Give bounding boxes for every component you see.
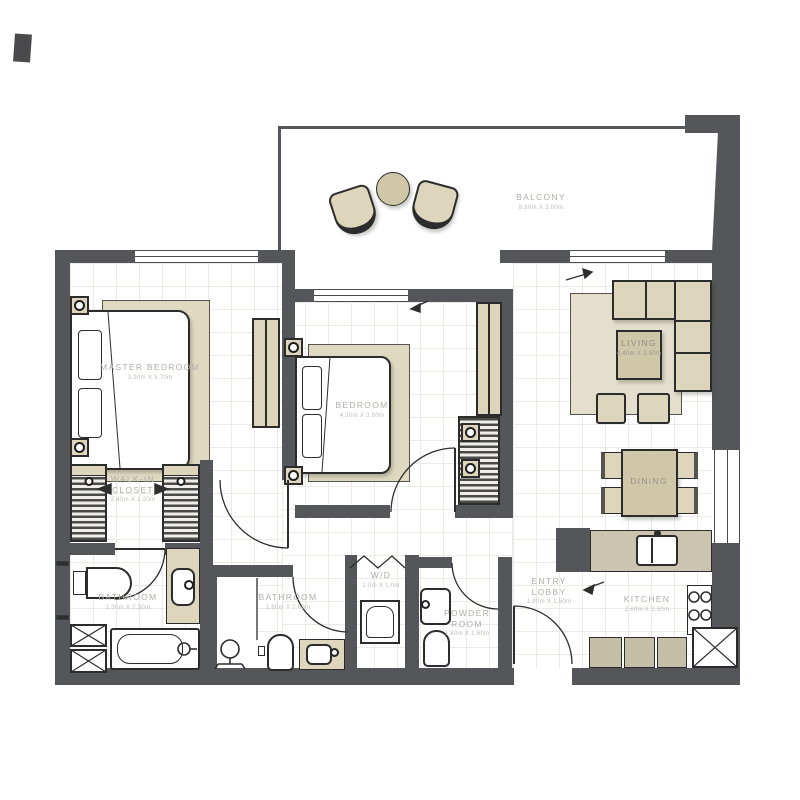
master-bedroom-dims: 3.90m X 3.70m: [95, 375, 205, 383]
bathtub-inner: [117, 634, 183, 664]
living-name: LIVING: [609, 338, 669, 349]
bathroom-master-dims: 2.30m X 2.30m: [88, 605, 168, 613]
shaft-box: [70, 649, 107, 673]
light-fixture-icon: [70, 296, 89, 315]
balcony-railing-left: [278, 126, 281, 252]
window-master-bedroom: [135, 250, 258, 263]
wall-kitchen-column: [556, 528, 590, 572]
walkin-closet-unit-right: [162, 464, 200, 542]
balcony-railing-top: [278, 126, 688, 129]
closet-cap: [164, 466, 198, 476]
sofa-cushion-line: [676, 320, 710, 322]
wall-bath-master-top-a: [55, 543, 115, 555]
label-balcony: BALCONY 8.60m X 3.00m: [491, 192, 591, 212]
light-fixture-ring: [74, 300, 85, 311]
dining-chair: [601, 487, 622, 514]
bedroom-name: BEDROOM: [312, 400, 412, 411]
window-dining: [714, 450, 740, 543]
balcony-name: BALCONY: [491, 192, 591, 203]
balcony-dims: 8.60m X 3.00m: [491, 205, 591, 213]
light-fixture-icon: [461, 459, 480, 478]
faucet-master: [184, 580, 194, 590]
light-fixture-icon: [284, 338, 303, 357]
label-walkin-closet: WALK-IN CLOSET 2.40m X 1.20m: [103, 474, 163, 505]
sofa-cushion-line: [676, 352, 710, 354]
bedroom-wardrobe-line: [488, 304, 490, 414]
pouf: [596, 393, 626, 424]
wall-outer-right-upper: [712, 250, 740, 450]
kitchen-cabinet: [589, 637, 622, 668]
wall-balcony-top-right: [685, 115, 740, 133]
wall-bedroom-bottom-b: [455, 505, 500, 518]
kitchen-faucet: [654, 530, 661, 537]
toilet-tank: [73, 571, 86, 595]
bedroom-bed-pillow: [302, 414, 322, 458]
balcony-chair: [327, 183, 381, 240]
label-master-bedroom: MASTER BEDROOM 3.90m X 3.70m: [95, 362, 205, 382]
wall-balcony-slant: [712, 131, 740, 252]
wall-bedroom-right-lower: [500, 417, 513, 518]
label-entry-lobby: ENTRY LOBBY 1.90m X 1.50m: [525, 576, 573, 607]
wall-powder-right: [498, 557, 512, 668]
light-fixture-icon: [284, 466, 303, 485]
kitchen-dims: 2.60m X 2.50m: [607, 607, 687, 615]
label-bedroom: BEDROOM 4.30m X 3.60m: [312, 400, 412, 420]
light-fixture-icon: [70, 438, 89, 457]
closet-knob: [177, 477, 186, 486]
corner-mark: [13, 33, 32, 62]
wall-outer-bottom: [55, 668, 740, 685]
wd-dims: 1.0m X 1.0m: [351, 583, 411, 591]
pouf: [637, 393, 670, 424]
label-living: LIVING 4.40m X 3.90m: [609, 338, 669, 358]
wall-bath2-left: [205, 565, 217, 668]
master-bedroom-name: MASTER BEDROOM: [95, 362, 205, 373]
kitchen-cabinet: [657, 637, 687, 668]
light-fixture-ring: [465, 463, 476, 474]
walkin-closet-name: WALK-IN CLOSET: [103, 474, 163, 495]
kitchen-sink: [636, 535, 678, 566]
label-kitchen: KITCHEN 2.60m X 2.50m: [607, 594, 687, 614]
shower-stall: [217, 577, 258, 668]
walkin-closet-unit-left: [70, 464, 107, 542]
wall-top-living-a: [500, 250, 570, 263]
wall-bath2-top: [205, 565, 293, 577]
wall-top-master-a: [55, 250, 135, 263]
label-powder-room: POWDER ROOM 1.80m X 1.60m: [441, 608, 493, 639]
sofa-cushion-line: [645, 282, 647, 318]
toilet-bath2: [267, 634, 294, 671]
bathroom-master-name: BATHROOM: [88, 592, 168, 603]
walkin-closet-dims: 2.40m X 1.20m: [103, 497, 163, 505]
entry-lobby-name: ENTRY LOBBY: [525, 576, 573, 597]
closet-cap: [72, 466, 105, 476]
light-fixture-ring: [288, 470, 299, 481]
kitchen-cabinet: [624, 637, 655, 668]
balcony-chair: [408, 178, 460, 233]
wall-master-bedroom2-divider: [282, 302, 295, 480]
balcony-table: [376, 172, 410, 206]
entry-lobby-dims: 1.90m X 1.50m: [525, 599, 573, 607]
master-wardrobe-line: [265, 320, 267, 426]
wall-outer-left: [55, 250, 70, 685]
light-fixture-ring: [465, 427, 476, 438]
kitchen-sink-divider: [651, 538, 653, 563]
powder-room-name: POWDER ROOM: [441, 608, 493, 629]
faucet-bath2: [330, 648, 339, 657]
light-fixture-ring: [74, 442, 85, 453]
living-dims: 4.40m X 3.90m: [609, 351, 669, 359]
label-bathroom: BATHROOM 1.80m X 2.60m: [248, 592, 328, 612]
bathroom-dims: 1.80m X 2.60m: [248, 605, 328, 613]
dining-chair: [601, 452, 622, 479]
label-dining: DINING: [619, 476, 679, 487]
dining-chair: [677, 452, 698, 479]
label-wd: W/D 1.0m X 1.0m: [351, 570, 411, 590]
shaft-box: [692, 627, 738, 668]
wall-powder-top: [419, 557, 452, 568]
floor-plan: MASTER BEDROOM 3.90m X 3.70m BEDROOM 4.3…: [0, 0, 800, 800]
kitchen-name: KITCHEN: [607, 594, 687, 605]
bedroom-dims: 4.30m X 3.60m: [312, 413, 412, 421]
powder-room-dims: 1.80m X 1.60m: [441, 631, 493, 639]
sink-bath2: [306, 644, 332, 665]
wall-top-bedroom-a: [282, 289, 314, 302]
entry-door-opening: [514, 668, 572, 685]
light-fixture-icon: [461, 423, 480, 442]
wd-name: W/D: [351, 570, 411, 581]
window-bedroom: [314, 289, 408, 302]
wall-top-bedroom-b: [408, 289, 513, 302]
sofa-chaise: [674, 280, 712, 392]
closet-knob: [84, 477, 93, 486]
flush-plate: [258, 646, 265, 656]
faucet-powder: [421, 600, 430, 609]
washer-drum: [366, 606, 394, 638]
dining-chair: [677, 487, 698, 514]
window-living: [570, 250, 665, 263]
wall-bedroom-bottom-a: [295, 505, 390, 518]
dining-name: DINING: [619, 476, 679, 487]
bathroom-name: BATHROOM: [248, 592, 328, 603]
label-bathroom-master: BATHROOM 2.30m X 2.30m: [88, 592, 168, 612]
master-bed-pillow: [78, 388, 102, 438]
shaft-box: [70, 624, 107, 647]
light-fixture-ring: [288, 342, 299, 353]
